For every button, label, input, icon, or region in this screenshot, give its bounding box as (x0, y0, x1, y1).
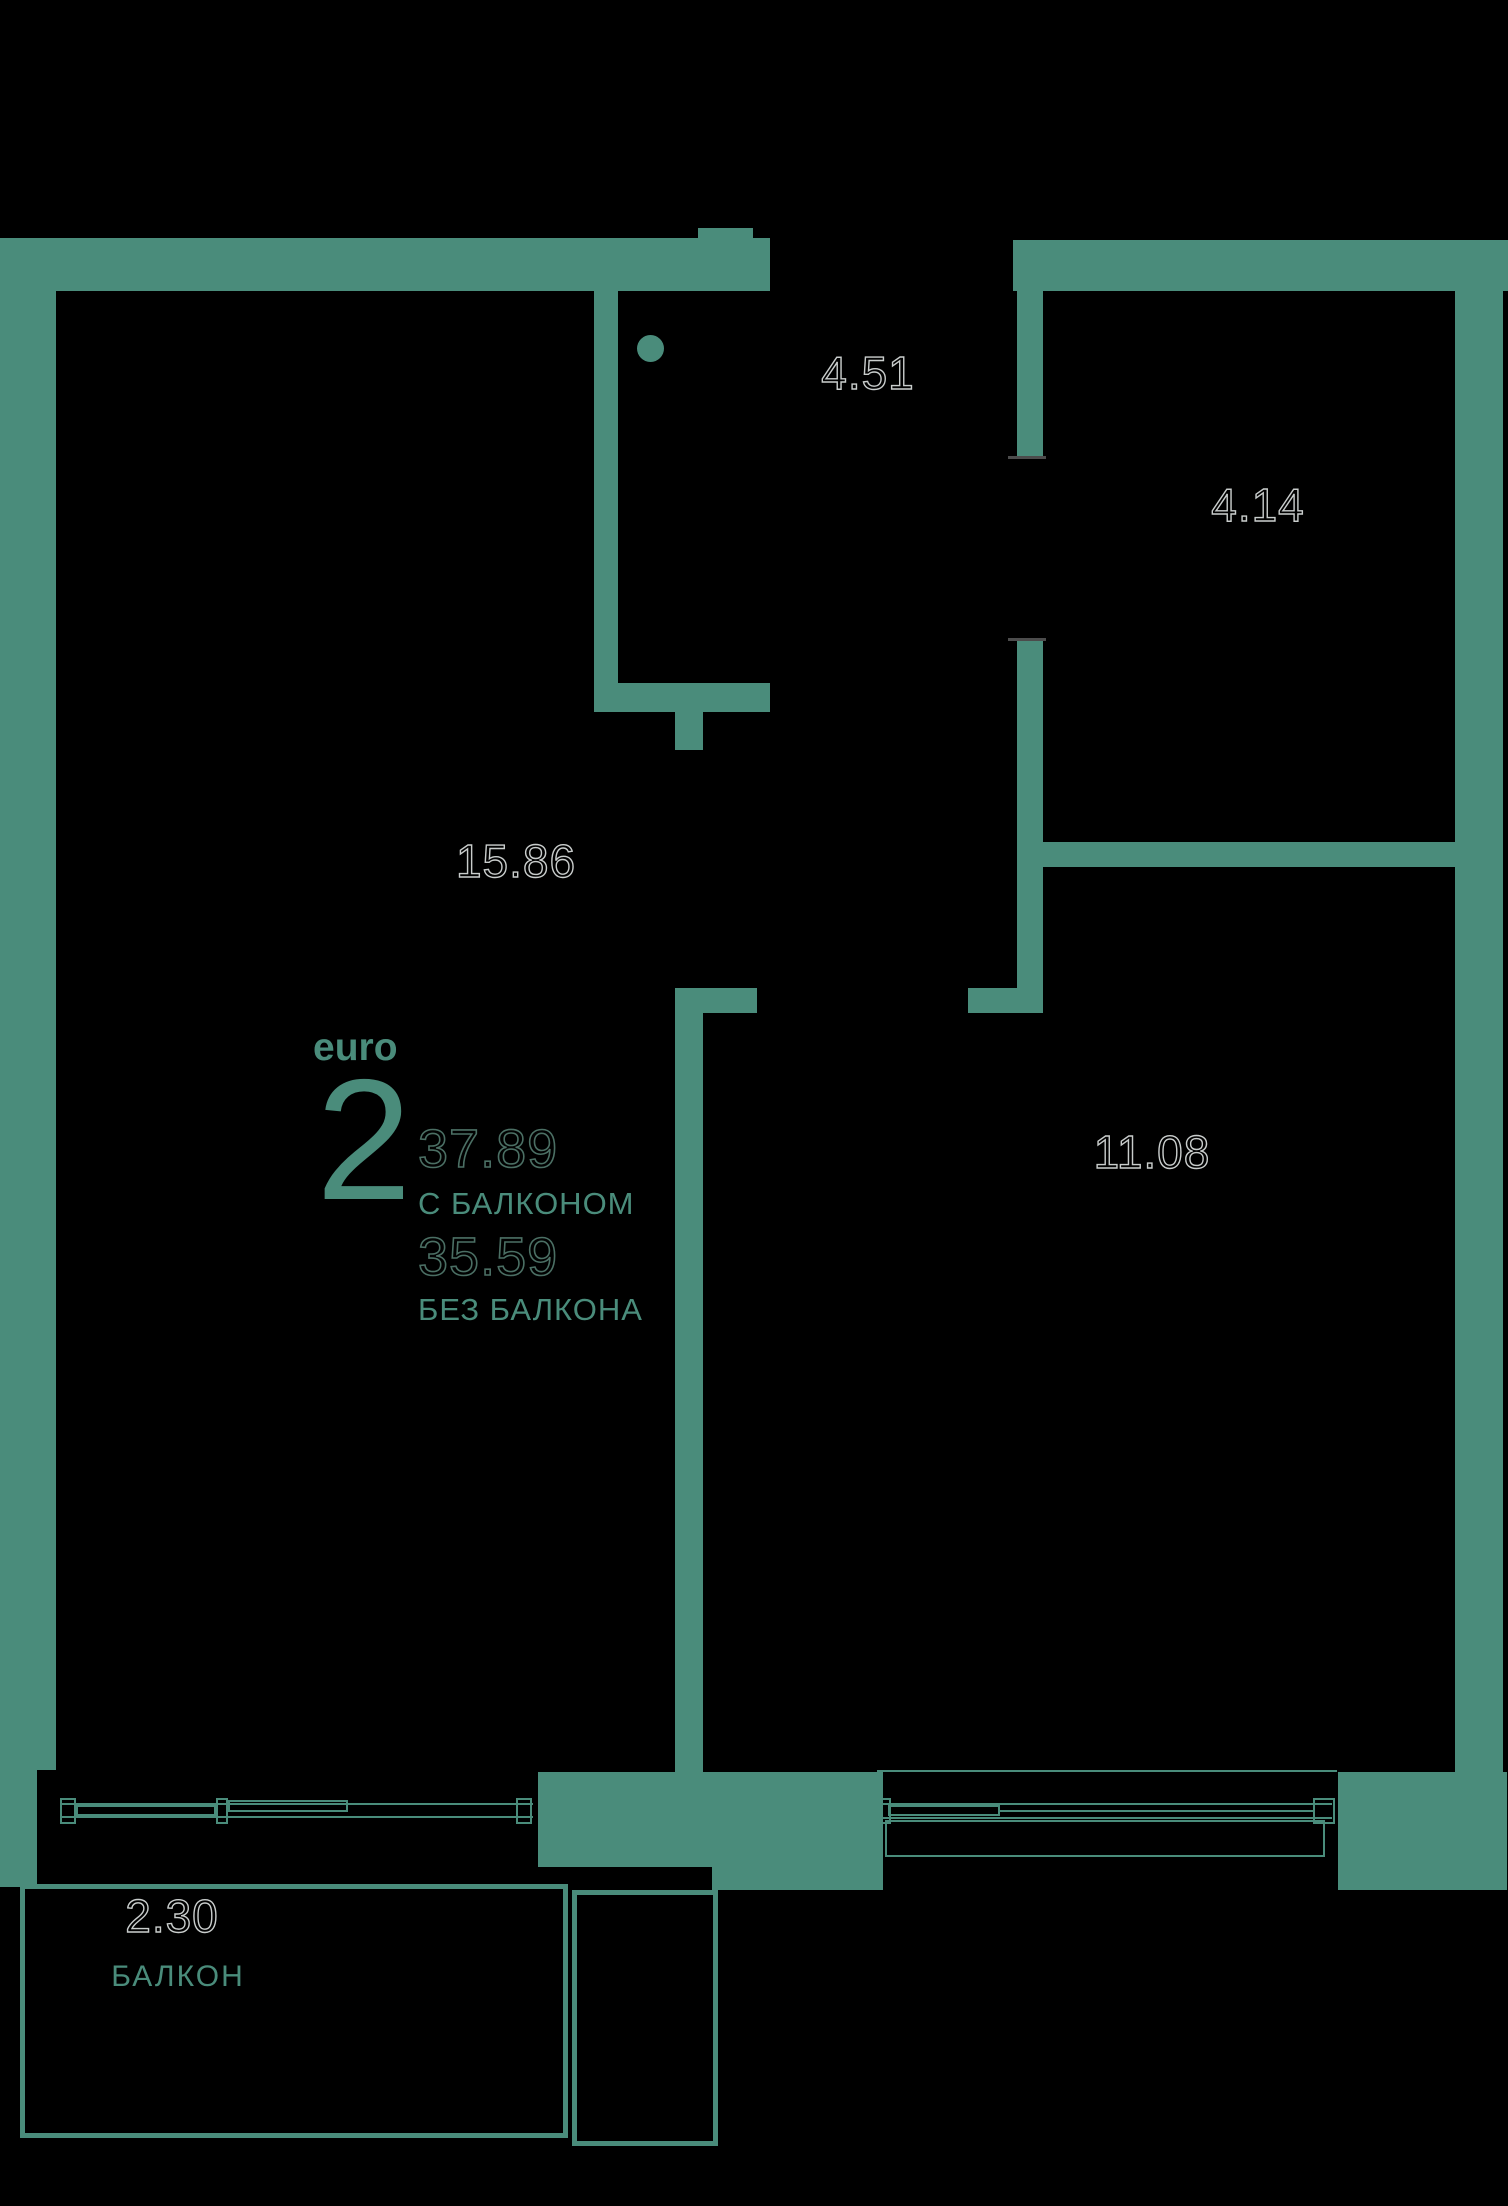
door-tick-top (1008, 456, 1046, 459)
balcony-text-label: БАЛКОН (111, 1960, 245, 1994)
area-label-living-kitchen: 15.86 (456, 834, 576, 888)
area-with-balcony-value: 37.89 (418, 1122, 558, 1176)
area-label-room-top-right: 4.14 (1211, 478, 1305, 532)
wall-hallway-divider-lower (1017, 640, 1043, 1013)
wall-left-pillar (0, 1770, 37, 1887)
area-label-balcony: 2.30 (125, 1889, 219, 1943)
living-window-bottom-line (62, 1816, 533, 1818)
bedroom-window-sash (888, 1805, 1000, 1816)
bedroom-window-ledge-box (885, 1820, 1325, 1857)
wall-corner-bottom-right (1338, 1772, 1507, 1890)
door-pivot-dot (637, 335, 664, 362)
neighbor-balcony-outline (572, 1890, 718, 2146)
wall-hall-bottom-right-segment (968, 988, 1043, 1013)
wall-niche-bottom (594, 683, 770, 712)
wall-right-outer (1455, 291, 1503, 1772)
balcony-outline (20, 1884, 568, 2138)
wall-top-right-outer (1013, 240, 1508, 291)
living-window-cap-right (516, 1798, 532, 1824)
area-without-balcony-label: БЕЗ БАЛКОНА (418, 1294, 643, 1325)
wall-top-outer (0, 238, 770, 291)
bedroom-window-bottom-line (882, 1817, 1332, 1819)
wall-door-stub (675, 712, 703, 750)
bedroom-window-recess-line (877, 1770, 1337, 1772)
area-without-balcony-value: 35.59 (418, 1230, 558, 1284)
wall-bottom-chunk-left (538, 1772, 712, 1867)
living-window-cap-left (60, 1798, 76, 1824)
wall-bottom-chunk-right (712, 1772, 883, 1890)
wall-entry-jamb (698, 228, 753, 240)
door-tick-bottom (1008, 638, 1046, 641)
living-window-mullion (216, 1798, 228, 1824)
wall-living-bedroom-divider (675, 988, 703, 1772)
unit-rooms-number: 2 (316, 1070, 412, 1211)
living-balcony-door-leaf (228, 1800, 348, 1812)
wall-room-divider-horizontal (1043, 842, 1455, 867)
wall-niche-left (594, 291, 618, 712)
living-window-sash (76, 1805, 216, 1816)
area-label-hallway: 4.51 (821, 346, 915, 400)
area-label-bedroom: 11.08 (1094, 1125, 1211, 1179)
area-with-balcony-label: С БАЛКОНОМ (418, 1188, 635, 1219)
wall-hallway-divider-upper (1017, 291, 1043, 458)
floor-plan: 15.86 4.51 4.14 11.08 2.30 БАЛКОН euro 2… (0, 0, 1508, 2206)
wall-left-outer (0, 238, 56, 1770)
bedroom-window-mid-line (1000, 1810, 1315, 1812)
